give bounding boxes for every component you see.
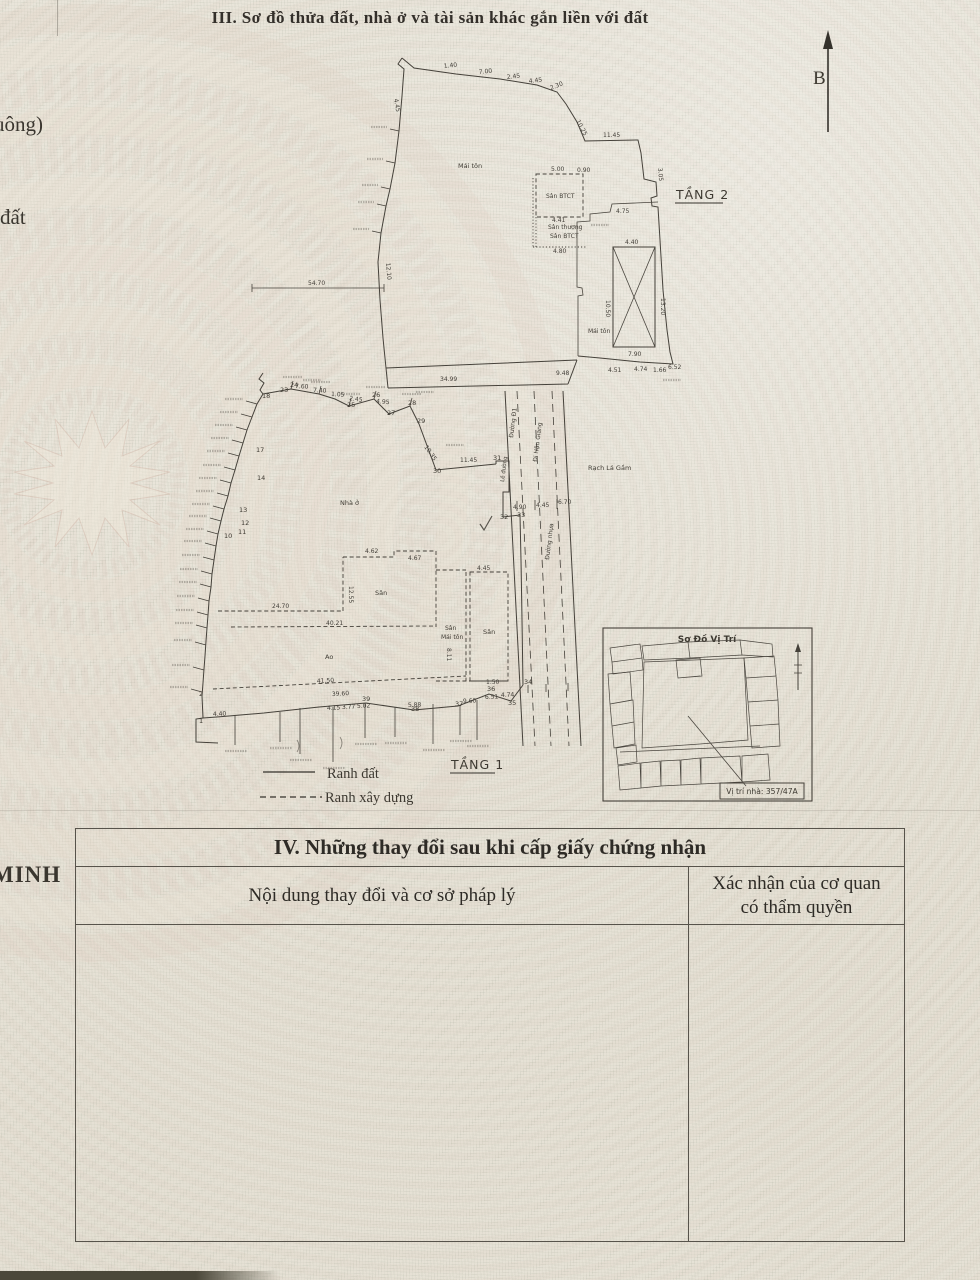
column-header-content: Nội dung thay đổi và cơ sở pháp lý (76, 867, 689, 924)
boundary-tick (377, 204, 386, 206)
dimension-label: 4.51 (608, 367, 622, 374)
north-arrow: B (813, 30, 833, 132)
dimension-label: 4.75 (616, 208, 630, 215)
dimension-label: 4.40 (213, 711, 227, 718)
horizontal-crease (0, 810, 980, 811)
dimension-label: 0.90 (577, 167, 591, 174)
boundary-tick (205, 543, 216, 546)
boundary-tick (193, 667, 204, 670)
dimension-label: 11.45 (603, 132, 620, 139)
drawing-label: Rạch Lá Gầm (588, 464, 631, 472)
dimension-label: 1.66 (653, 367, 667, 374)
dimension-label: 4.15 (327, 705, 341, 712)
drawing-labels: Mái tônSân BTCTSân thượngSân BTCTMái tôn… (325, 162, 631, 661)
dimension-label: 41.50 (317, 677, 335, 685)
dimension-label: 54.70 (308, 280, 325, 287)
vertex-number: 18 (262, 392, 270, 400)
dimension-label: 4.45 (477, 565, 491, 572)
drawing-label: Sân (445, 625, 456, 632)
dimension-label: 4.45 (528, 77, 542, 85)
dimension-label: 3.77 (342, 704, 356, 711)
vertex-number: 38 (411, 705, 419, 713)
page-fold-line (57, 0, 58, 36)
edge-fragment-top: uông) (0, 112, 43, 137)
boundary-tick (200, 584, 211, 587)
drawing-label: Ao (325, 653, 333, 661)
dimension-label: 5.00 (551, 166, 565, 173)
boundary-tick (390, 129, 399, 131)
north-label: B (813, 68, 826, 89)
section3-title: III. Sơ đồ thửa đất, nhà ở và tài sản kh… (120, 8, 740, 28)
dimension-label: 10.35 (422, 444, 438, 462)
dimension-label: 13.20 (659, 298, 666, 315)
drawing-label: Đường nhựa (544, 523, 555, 561)
dimension-label: 4.74 (501, 692, 515, 699)
vertex-number: 35 (508, 699, 516, 707)
boundary-tick (232, 440, 243, 443)
vertex-number: 23 (280, 386, 288, 394)
dimension-label: 5.02 (357, 703, 371, 710)
boundary-tick (236, 427, 247, 430)
dimension-label: 4.62 (365, 548, 379, 555)
dimension-label: 40.21 (326, 620, 343, 627)
vertex-number: 25 (347, 401, 355, 409)
changes-cell-confirmation (689, 925, 904, 1241)
drawing-label: Sân BTCT (546, 193, 575, 200)
vertex-number: 13 (239, 506, 247, 514)
drawing-label: Mái tôn (458, 162, 482, 170)
vertex-number: 10 (224, 532, 232, 540)
dimension-label: 6.52 (668, 364, 682, 371)
vertex-number: 28 (408, 399, 416, 407)
dimension-label: 10.50 (604, 300, 611, 317)
boundary-tick (203, 557, 214, 560)
inset-north-arrow (794, 643, 802, 690)
dimension-label: 3.05 (656, 168, 664, 182)
dimension-label: 4.90 (513, 504, 527, 511)
drawing-label: Sân (483, 628, 495, 636)
vertex-number: 2 (199, 690, 203, 698)
edge-fragment-middle: đất (0, 205, 26, 230)
dimension-label: 24.70 (272, 603, 289, 610)
boundary-tick (241, 414, 252, 417)
dimension-label: 7.90 (628, 351, 642, 358)
dimension-label: 4.40 (625, 239, 639, 246)
vertex-number: 36 (487, 685, 495, 693)
boundary-tick (198, 598, 209, 601)
inset-location-map: Sơ Đồ Vị Trí Vị trí nhà: 357/47A (603, 628, 812, 801)
dimension-label: 4.74 (634, 366, 648, 373)
section4-title: IV. Những thay đổi sau khi cấp giấy chứn… (76, 829, 904, 867)
boundary-tick (201, 571, 212, 574)
vertex-number: 29 (417, 417, 425, 425)
vertex-number: 30 (433, 467, 441, 475)
inset-caption: Vị trí nhà: 357/47A (726, 787, 798, 796)
dimension-label: 2.45 (506, 73, 520, 81)
boundary-tick (197, 612, 208, 615)
boundary-tick (207, 531, 218, 534)
boundary-tick (224, 467, 235, 470)
drawing-label: Mái tôn (588, 328, 610, 335)
dimension-label: 4.45 (392, 98, 401, 113)
boundary-tick (196, 625, 207, 628)
boundary-tick (386, 161, 395, 163)
drawing-label: Sân BTCT (550, 233, 579, 240)
dimension-label: 1.40 (443, 62, 457, 70)
dimension-label: 12.55 (347, 586, 354, 603)
boundary-tick (213, 506, 224, 509)
desk-edge (0, 1271, 280, 1280)
dimension-label: 9.48 (556, 370, 570, 377)
changes-table: IV. Những thay đổi sau khi cấp giấy chứn… (75, 828, 905, 1242)
boundary-tick (246, 401, 257, 404)
vertex-number: 32 (500, 513, 508, 521)
dimension-label: 8.11 (445, 648, 452, 662)
legend: Ranh đất Ranh xây dựng TẦNG 1 (260, 737, 504, 806)
dimension-label: 12.10 (384, 263, 392, 281)
drawing-label: Đường Đ1 (508, 407, 519, 438)
floor1-label: TẦNG 1 (450, 756, 504, 772)
dimension-label: 10.25 (574, 119, 588, 138)
vertex-number: 1 (199, 717, 203, 725)
vertex-number: 31 (493, 454, 501, 462)
boundary-tick (372, 231, 381, 233)
vertex-number: 33 (517, 511, 525, 519)
dimension-label: 4.67 (408, 555, 422, 562)
dimension-label: 6.70 (558, 499, 572, 506)
floor2-label: TẦNG 2 (675, 186, 729, 202)
drawing-label: Sân thượng (548, 224, 583, 231)
void-cross-box (613, 247, 655, 347)
vertex-number: 12 (241, 519, 249, 527)
vertex-number: 37 (455, 700, 463, 708)
boundary-tick (210, 518, 221, 521)
drawing-label: Mái tôn (441, 634, 463, 641)
boundary-tick (195, 642, 206, 645)
changes-cell-content (76, 925, 689, 1241)
drawing-label: Nhà ở (340, 499, 359, 507)
certificate-page-photo: B TẦNG 2 (0, 0, 980, 1280)
dimension-label: 6.51 (485, 694, 499, 701)
vertex-number: 39 (362, 695, 370, 703)
legend-dashed-label: Ranh xây dựng (325, 790, 413, 806)
dimension-label: 4.41 (552, 217, 566, 224)
vertex-number: 14 (257, 474, 265, 482)
boundary-tick (228, 453, 239, 456)
dimension-label: 7.40 (313, 387, 327, 395)
roads (505, 391, 581, 746)
vertex-number: 17 (256, 446, 264, 454)
dimension-label: 9.60 (463, 698, 477, 705)
dimension-label: 39.60 (332, 690, 350, 698)
boundary-tick (217, 493, 228, 496)
dimension-label: 4.45 (536, 502, 550, 509)
vertex-number: 27 (387, 409, 395, 417)
dimension-label: 7.00 (478, 68, 492, 76)
dimension-label: 1.05 (331, 391, 345, 399)
edge-fragment-bottom: MINH (0, 862, 61, 888)
dimension-label: 11.45 (460, 457, 477, 464)
column-header-confirmation: Xác nhận của cơ quan có thẩm quyền (689, 867, 904, 924)
drawing-label: Đi Hậu Giang (532, 422, 544, 462)
dimension-label: 4.80 (553, 248, 567, 255)
floor1-plan (196, 373, 523, 743)
legend-solid-label: Ranh đất (327, 766, 379, 782)
floor2-plan: TẦNG 2 (252, 58, 729, 388)
vertex-number: 26 (372, 391, 380, 399)
boundary-tick (381, 187, 390, 189)
dimension-label: 34.99 (440, 376, 457, 383)
vertex-number: 34 (524, 678, 532, 686)
vertex-number: 11 (238, 528, 246, 536)
boundary-tick (220, 480, 231, 483)
dimension-label: 4.95 (376, 398, 390, 406)
dimension-label: 2.30 (549, 80, 564, 92)
drawing-label: Sân (375, 589, 387, 597)
inset-title: Sơ Đồ Vị Trí (678, 634, 737, 645)
vertex-number: 24 (290, 381, 298, 389)
